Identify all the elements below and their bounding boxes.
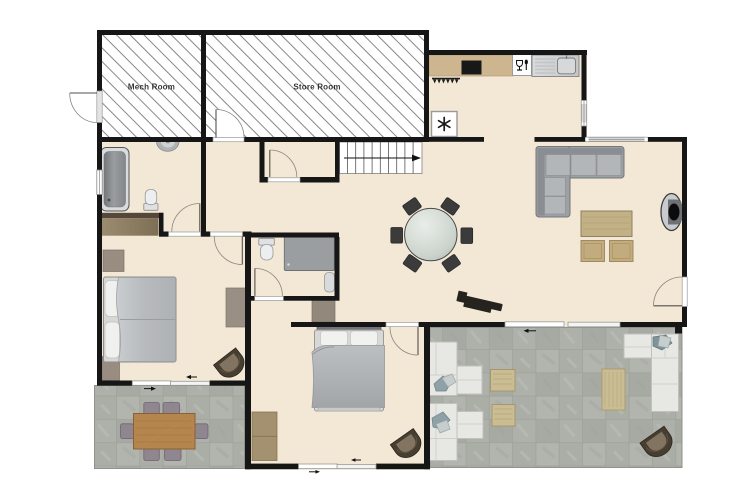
- svg-text:Mech Room: Mech Room: [128, 82, 175, 91]
- svg-text:Store Room: Store Room: [293, 82, 340, 91]
